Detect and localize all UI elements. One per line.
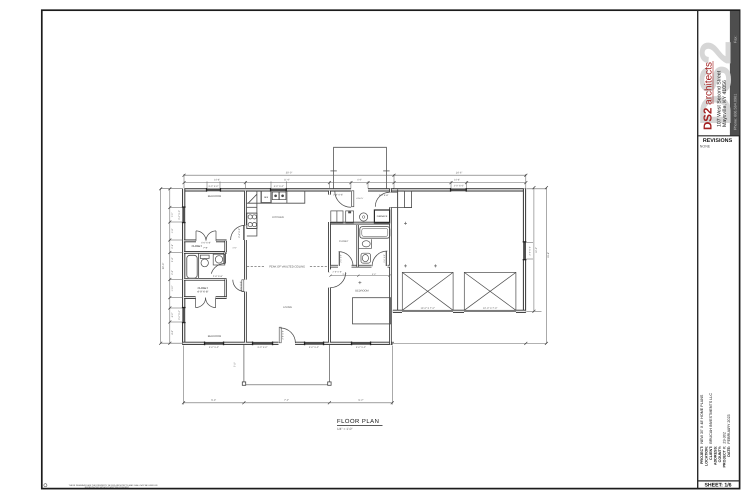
svg-text:2'-6": 2'-6": [171, 244, 174, 249]
svg-text:FURNACE: FURNACE: [377, 215, 388, 218]
svg-text:1/4" = 1'-0": 1/4" = 1'-0": [337, 427, 353, 431]
svg-text:NEW 30' X 48' HOME PLANS: NEW 30' X 48' HOME PLANS: [700, 394, 704, 443]
svg-text:14'-6": 14'-6": [454, 179, 460, 182]
svg-text:7'-4": 7'-4": [203, 247, 208, 250]
svg-text:REPRODUCED WITHOUT WRITTEN CON: REPRODUCED WITHOUT WRITTEN CONSENT: [85, 486, 130, 489]
svg-text:PEAK OF VAULTED CEILING: PEAK OF VAULTED CEILING: [269, 266, 305, 269]
svg-text:PROJECT #:: PROJECT #:: [722, 446, 726, 468]
svg-text:2'-8" 6'-8": 2'-8" 6'-8": [333, 193, 343, 196]
svg-text:4'-0": 4'-0": [357, 179, 362, 182]
svg-text:BEDROOM: BEDROOM: [208, 195, 221, 198]
svg-text:NONE: NONE: [700, 144, 711, 148]
svg-text:4'-8": 4'-8": [171, 330, 174, 335]
svg-text:LIVING: LIVING: [283, 306, 292, 309]
svg-text:ADDRESS:: ADDRESS:: [713, 446, 717, 465]
svg-text:3'-0" 5'-0": 3'-0" 5'-0": [356, 346, 366, 349]
svg-text:COUNTY:: COUNTY:: [718, 446, 722, 463]
svg-text:3'-0" 5'-0": 3'-0" 5'-0": [274, 185, 284, 188]
svg-text:CLIENT:: CLIENT:: [709, 446, 713, 460]
svg-text:1'-6": 1'-6": [232, 246, 237, 249]
svg-text:1'-10": 1'-10": [171, 285, 174, 291]
svg-text:5'-0": 5'-0": [211, 399, 216, 402]
svg-text:7'-2": 7'-2": [233, 362, 236, 367]
svg-text:UTILITY: UTILITY: [356, 197, 364, 200]
svg-text:1'-4": 1'-4": [171, 229, 174, 234]
svg-text:2'-6" 6'-8": 2'-6" 6'-8": [238, 228, 241, 238]
svg-text:3'-0" 5'-0": 3'-0" 5'-0": [257, 346, 267, 349]
svg-text:CLOSET: CLOSET: [198, 287, 209, 290]
svg-text:12'-2": 12'-2": [535, 247, 538, 253]
svg-text:3'-0" 5'-0": 3'-0" 5'-0": [309, 346, 319, 349]
svg-text:DATE:: DATE:: [727, 446, 731, 457]
svg-text:BRUCAH INVESTMENTS LLC: BRUCAH INVESTMENTS LLC: [709, 393, 713, 444]
svg-text:3'-4": 3'-4": [372, 273, 377, 276]
svg-text:CLOSET: CLOSET: [192, 245, 203, 248]
svg-text:4'-0" 6'-8": 4'-0" 6'-8": [197, 290, 208, 293]
svg-text:2'-0" 5'-0": 2'-0" 5'-0": [529, 246, 532, 256]
svg-text:30'-0": 30'-0": [162, 263, 165, 270]
svg-text:23-302: 23-302: [722, 432, 726, 443]
svg-text:6'-2": 6'-2": [171, 313, 174, 318]
svg-text:2'-0" 6'-0": 2'-0" 6'-0": [454, 184, 464, 187]
svg-text:3'-4": 3'-4": [171, 257, 174, 262]
svg-text:CLOSET: CLOSET: [339, 240, 349, 243]
svg-text:LOCATION:: LOCATION:: [704, 446, 708, 466]
svg-text:3'-0" 5'-0": 3'-0" 5'-0": [178, 210, 181, 220]
svg-text:BEDROOM: BEDROOM: [208, 335, 221, 338]
svg-text:3'-0" 5'-0": 3'-0" 5'-0": [178, 310, 181, 320]
svg-text:SHEET: 1/6: SHEET: 1/6: [704, 482, 731, 488]
svg-text:30'-0": 30'-0": [286, 171, 293, 174]
svg-text:2'-8" 6'-8": 2'-8" 6'-8": [282, 330, 285, 340]
svg-text:KITCHEN: KITCHEN: [272, 216, 284, 219]
svg-text:2'-6" 6'-8": 2'-6" 6'-8": [383, 254, 386, 263]
svg-text:10'-0" X 7'-0": 10'-0" X 7'-0": [483, 307, 498, 310]
svg-text:2'-6" 6'-8": 2'-6" 6'-8": [240, 281, 243, 291]
svg-text:FLOOR PLAN: FLOOR PLAN: [337, 418, 379, 425]
svg-text:2'-8" 6'-8": 2'-8" 6'-8": [333, 270, 343, 273]
svg-text:2'-0" 6'-8": 2'-0" 6'-8": [339, 254, 342, 263]
svg-text:PROJECT:: PROJECT:: [700, 446, 704, 464]
svg-text:7'-0": 7'-0": [171, 213, 174, 218]
svg-text:11'-0": 11'-0": [284, 179, 290, 182]
svg-text:Maysville, KY 41056: Maysville, KY 41056: [722, 80, 728, 127]
svg-text:15'-6": 15'-6": [547, 252, 550, 258]
svg-text:4'-0" 6'-8": 4'-0" 6'-8": [201, 241, 211, 244]
svg-text:REVISIONS: REVISIONS: [703, 138, 733, 144]
svg-text:3'-0" 6'-8": 3'-0" 6'-8": [379, 194, 389, 197]
svg-text:3'-4": 3'-4": [342, 273, 347, 276]
svg-text:3'-0" 5'-0": 3'-0" 5'-0": [209, 346, 219, 349]
svg-text:14'-6": 14'-6": [214, 179, 220, 182]
svg-text:14'-6": 14'-6": [456, 171, 463, 174]
svg-text:FEBRUARY 2023: FEBRUARY 2023: [727, 414, 731, 443]
svg-text:2'-6" 6'-8": 2'-6" 6'-8": [213, 275, 223, 278]
svg-text:2'-8": 2'-8": [171, 270, 174, 275]
svg-text:10'-0" X 7'-0": 10'-0" X 7'-0": [420, 307, 435, 310]
svg-text:BEDROOM: BEDROOM: [355, 290, 368, 293]
svg-text:3'-0" 5'-0": 3'-0" 5'-0": [208, 185, 218, 188]
svg-text:7'-2": 7'-2": [284, 399, 289, 402]
svg-text:5'-2": 5'-2": [358, 399, 363, 402]
